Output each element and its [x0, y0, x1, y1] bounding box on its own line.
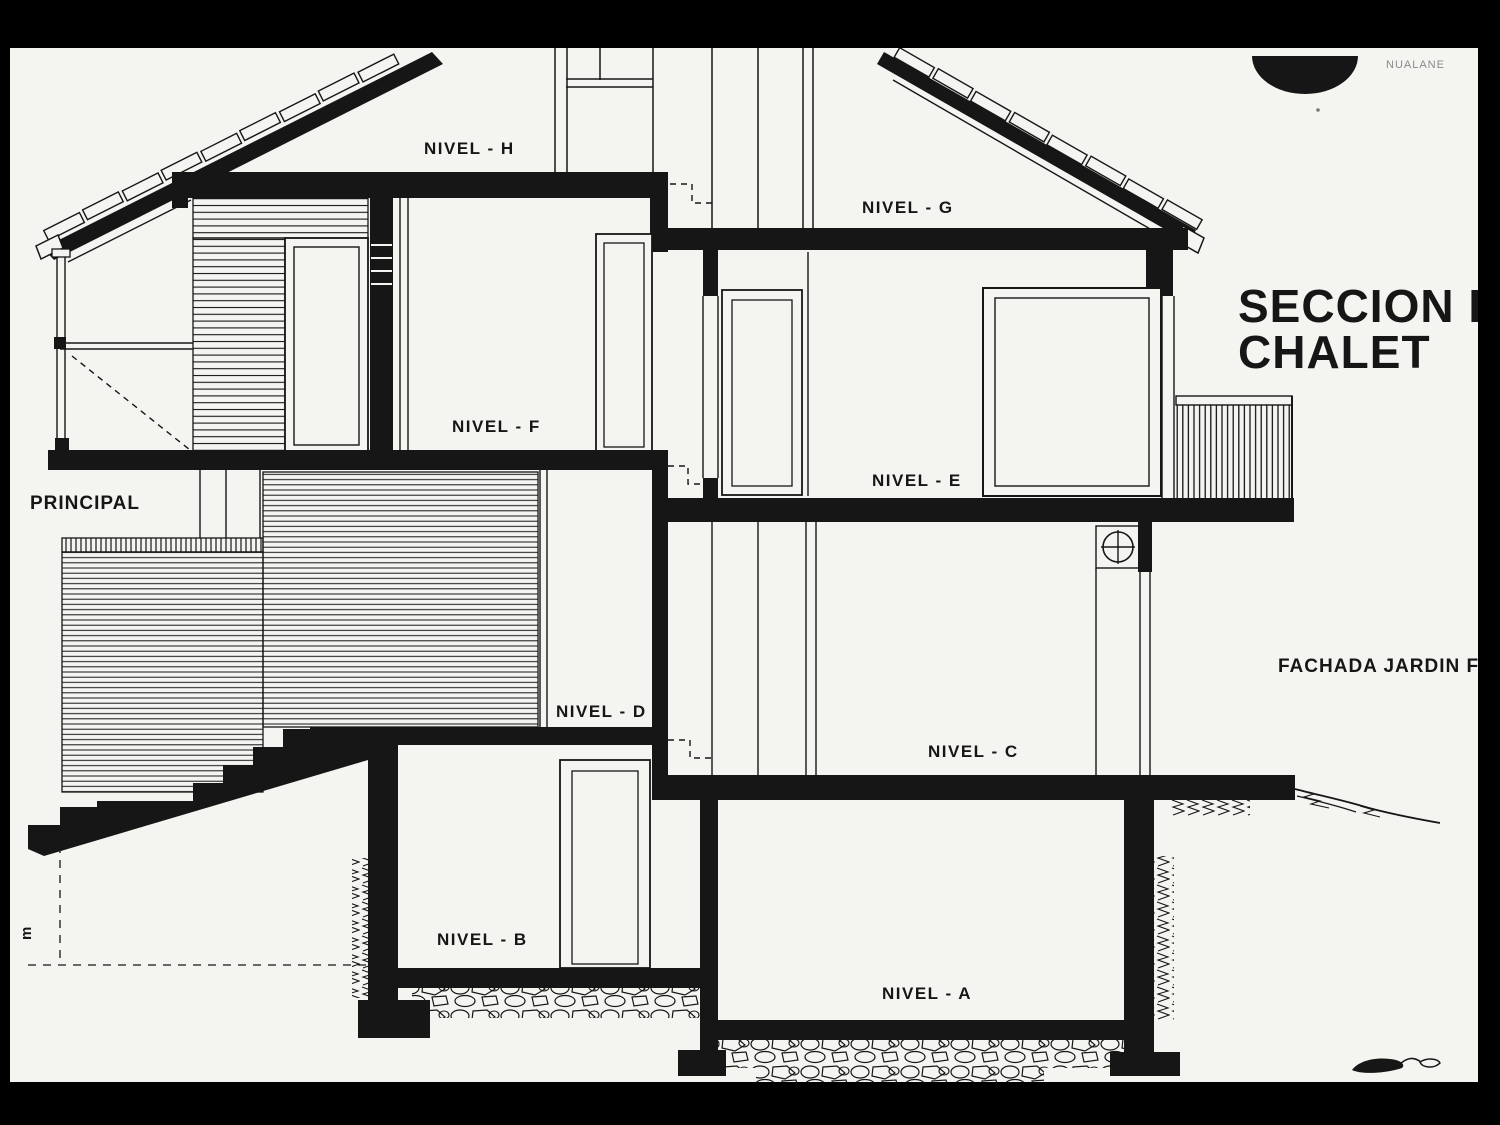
b-c-divider-wall [700, 798, 718, 1052]
label-nivel-h: NIVEL - H [424, 139, 515, 158]
title-line1: SECCION D [1238, 280, 1500, 332]
scan-border-bottom [0, 1082, 1500, 1125]
excavation-hatch-right [1154, 856, 1174, 1020]
a-foundation-stones-lower [756, 1068, 1044, 1082]
f-room-door [596, 234, 652, 455]
slab-nivel-c [652, 775, 1295, 800]
b-room-door [560, 760, 650, 968]
a-right-wall [1124, 798, 1154, 1054]
a-right-wall-footing [1110, 1052, 1180, 1076]
corner-note: NUALANE [1386, 59, 1445, 71]
e-level-window [983, 288, 1161, 496]
vent-wall-stub [1138, 522, 1152, 572]
label-principal: PRINCIPAL [30, 493, 140, 514]
chalet-section-svg: NIVEL - H NIVEL - G NIVEL - F NIVEL - E … [0, 0, 1500, 1125]
slab-nivel-b [398, 968, 718, 988]
label-nivel-g: NIVEL - G [862, 198, 954, 217]
slab-nivel-f [48, 450, 655, 470]
f-level-post [370, 198, 393, 460]
deck-hatch-left [62, 552, 263, 792]
label-fachada: FACHADA JARDIN F [1278, 656, 1479, 677]
scan-border-top [0, 0, 1500, 48]
deck-column [368, 745, 398, 1003]
label-nivel-f: NIVEL - F [452, 417, 541, 436]
label-nivel-e: NIVEL - E [872, 471, 962, 490]
slab-nivel-h [172, 172, 665, 198]
scan-border-right [1478, 0, 1500, 1125]
dimension-m: m [18, 927, 35, 940]
label-nivel-a: NIVEL - A [882, 984, 972, 1003]
e-room-door [722, 290, 802, 495]
b-foundation-stones [412, 988, 702, 1018]
scanned-section-drawing: NIVEL - H NIVEL - G NIVEL - F NIVEL - E … [0, 0, 1500, 1125]
deck-edge-boards [62, 538, 263, 552]
slab-nivel-a [716, 1020, 1136, 1040]
title-line2: CHALET [1238, 326, 1431, 378]
slab-h-left-step [172, 172, 188, 208]
slab-nivel-g [660, 228, 1188, 250]
label-nivel-c: NIVEL - C [928, 742, 1019, 761]
f-level-left-door [285, 238, 368, 454]
rubble-under-c-slab [1170, 800, 1250, 816]
excavation-hatch-left [352, 858, 370, 998]
deck-hatch-right [263, 472, 538, 727]
slab-nivel-e [658, 498, 1294, 522]
label-nivel-b: NIVEL - B [437, 930, 528, 949]
scan-border-left [0, 0, 10, 1125]
a-foundation-stones [718, 1040, 1136, 1068]
label-nivel-d: NIVEL - D [556, 702, 647, 721]
stamp-dot [1316, 108, 1320, 112]
